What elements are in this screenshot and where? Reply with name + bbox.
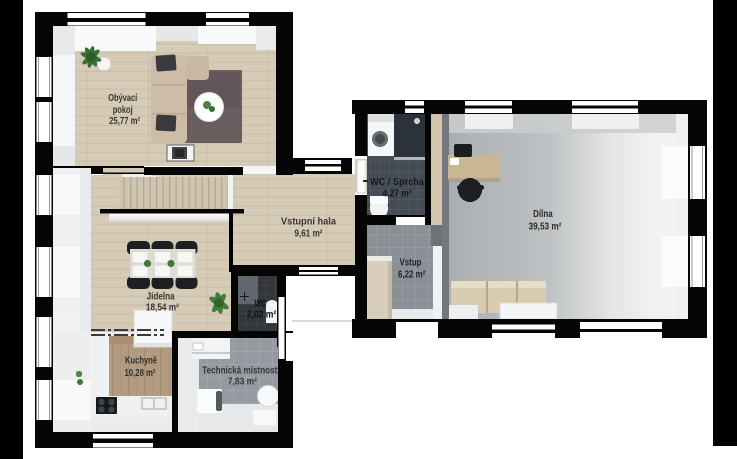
- svg-text:Technická místnost: Technická místnost: [202, 366, 278, 377]
- svg-text:WC: WC: [254, 299, 266, 310]
- svg-text:WC / Sprcha: WC / Sprcha: [370, 177, 425, 188]
- svg-text:7,83 m²: 7,83 m²: [228, 377, 258, 388]
- svg-text:Vstup: Vstup: [400, 258, 422, 269]
- svg-text:Kuchyně: Kuchyně: [125, 356, 157, 367]
- svg-text:25,77 m²: 25,77 m²: [109, 116, 141, 127]
- svg-text:4,27 m²: 4,27 m²: [383, 189, 413, 200]
- svg-text:Dílna: Dílna: [533, 209, 553, 220]
- svg-text:18,54 m²: 18,54 m²: [146, 303, 180, 314]
- svg-text:pokoj: pokoj: [113, 105, 133, 116]
- svg-text:Obývací: Obývací: [108, 93, 137, 104]
- svg-text:Vstupní hala: Vstupní hala: [281, 217, 337, 228]
- svg-text:9,61 m²: 9,61 m²: [295, 229, 324, 240]
- svg-text:10,28 m²: 10,28 m²: [125, 368, 157, 379]
- svg-text:39,53 m²: 39,53 m²: [529, 222, 563, 233]
- svg-text:Jídelna: Jídelna: [147, 291, 175, 302]
- svg-text:2,02 m²: 2,02 m²: [247, 309, 277, 320]
- svg-text:6,22 m²: 6,22 m²: [398, 269, 426, 280]
